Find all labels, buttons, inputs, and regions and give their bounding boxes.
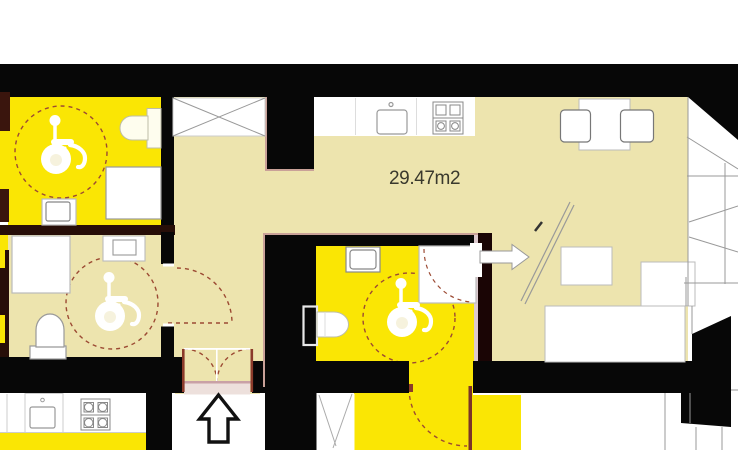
svg-text:29.47m2: 29.47m2 (389, 168, 460, 189)
